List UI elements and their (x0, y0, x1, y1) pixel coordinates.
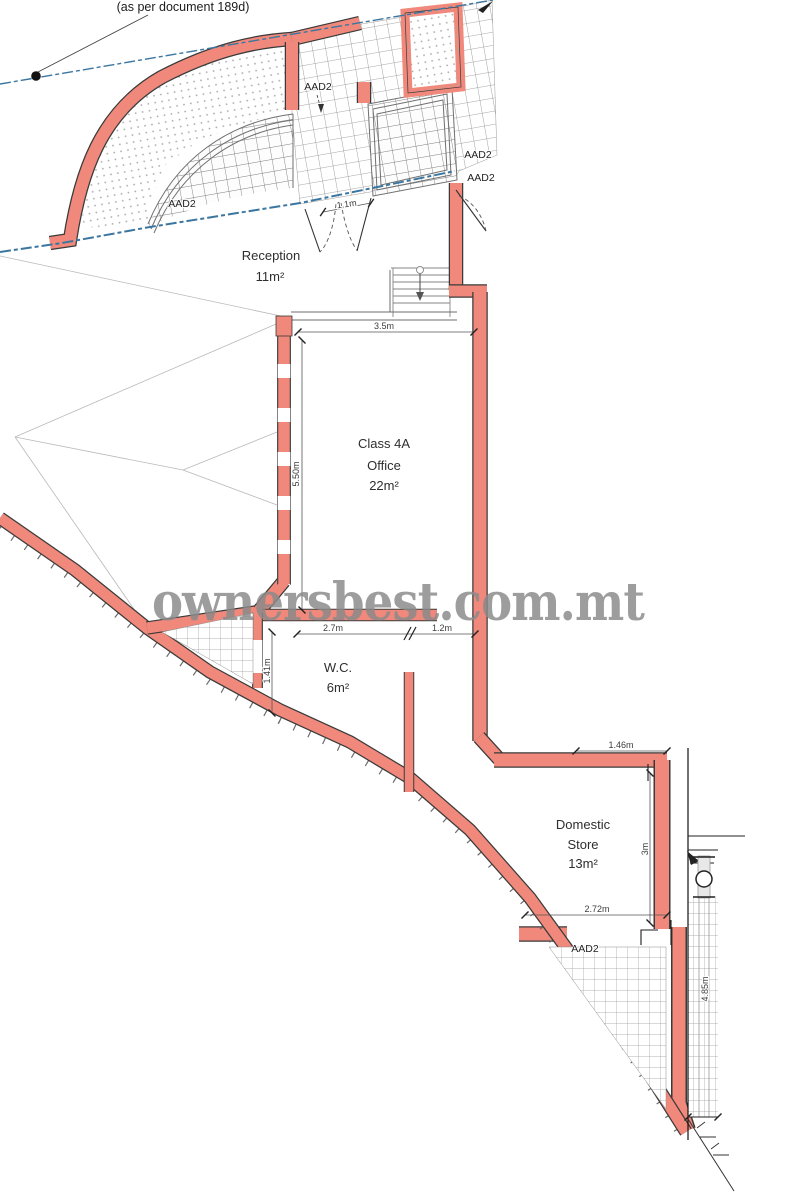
document-note: (as per document 189d) (117, 0, 250, 14)
floor-plan-page: 1.1m 3.5m 5.50m 2.7m 1.2m 1.41m 1.46m 3m… (0, 0, 796, 1200)
dim-side-strip: 4.85m (700, 976, 710, 1001)
door-label-top: AAD2 (304, 81, 332, 93)
entrance-shaft (405, 7, 461, 93)
survey-point-dot (31, 71, 41, 81)
store-name-2: Store (567, 837, 598, 852)
door-label-right-lower: AAD2 (467, 172, 495, 184)
labels: Reception 11m² Class 4A Office 22m² W.C.… (168, 81, 610, 955)
rect-window (368, 88, 457, 196)
reception-area: 11m² (256, 269, 285, 284)
wc-name: W.C. (324, 660, 352, 675)
dim-office-width: 3.5m (374, 321, 394, 331)
store-area: 13m² (568, 856, 598, 871)
stair-direction-arrow-icon (416, 292, 424, 301)
store-name-1: Domestic (556, 817, 611, 832)
office-name: Office (367, 458, 401, 473)
reception-name: Reception (242, 248, 301, 263)
door-label-right-upper: AAD2 (464, 149, 492, 161)
dim-wc-door: 1.41m (262, 658, 272, 683)
wc-area: 6m² (327, 680, 350, 695)
floor-plan-drawing: 1.1m 3.5m 5.50m 2.7m 1.2m 1.41m 1.46m 3m… (0, 0, 796, 1200)
dim-store-depth: 3m (640, 843, 650, 856)
dim-store-width: 2.72m (584, 904, 609, 914)
watermark-text: ownersbest.com.mt (152, 572, 645, 633)
office-class: Class 4A (358, 436, 410, 451)
dim-store-top: 1.46m (608, 740, 633, 750)
drainpipe-icon (696, 871, 712, 887)
staircase (291, 267, 457, 321)
door-label-arch: AAD2 (168, 198, 196, 210)
dim-entrance-door: 1.1m (336, 198, 357, 211)
office-area: 22m² (369, 478, 399, 493)
door-label-store: AAD2 (571, 943, 599, 955)
side-strip-hatch (688, 896, 718, 1117)
dim-office-depth: 5.50m (291, 461, 301, 486)
street-facade (0, 0, 497, 252)
store-hatch-triangle (549, 947, 666, 1109)
